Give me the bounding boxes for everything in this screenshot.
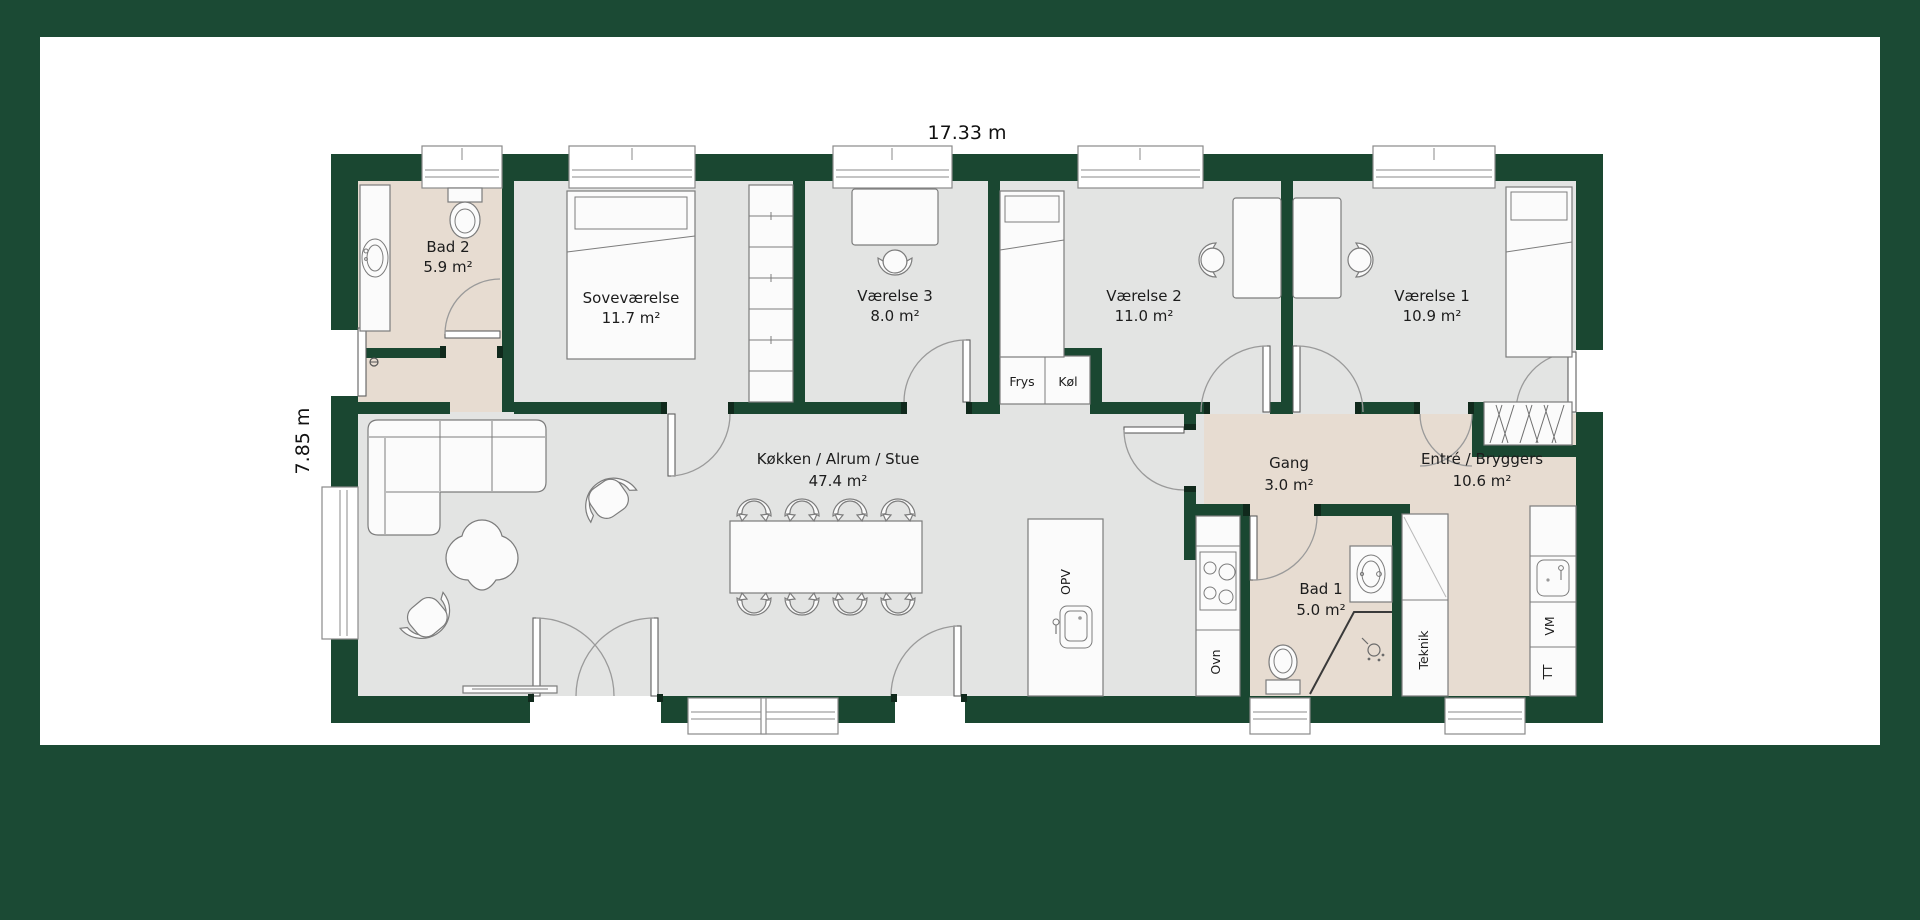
teknik-label: Teknik — [1416, 630, 1431, 671]
window-bad2 — [422, 146, 502, 188]
window-vaerelse1 — [1373, 146, 1495, 188]
desk-v2 — [1233, 198, 1281, 298]
window-stue-south — [688, 698, 838, 734]
window-entre-south — [1445, 698, 1525, 734]
fridge-freezer-niche: Frys Køl — [1000, 356, 1090, 404]
dining-table — [730, 521, 922, 593]
room-label-bad2: Bad 2 — [426, 238, 469, 256]
room-area-vaerelse1: 10.9 m² — [1403, 307, 1462, 325]
room-area-gang: 3.0 m² — [1264, 476, 1313, 494]
room-label-entre: Entré / Bryggers — [1421, 450, 1543, 468]
fridge-label: Køl — [1058, 374, 1077, 389]
room-area-bad1: 5.0 m² — [1296, 601, 1345, 619]
bad1-toilet — [1266, 645, 1300, 694]
bad1-vanity — [1350, 546, 1392, 602]
kitchen-island: OPV — [1028, 519, 1103, 696]
desk-v1 — [1293, 198, 1341, 298]
window-vaerelse2 — [1078, 146, 1203, 188]
room-label-vaerelse3: Værelse 3 — [857, 287, 933, 305]
oven-label: Ovn — [1208, 649, 1223, 674]
tv — [463, 686, 557, 693]
height-dimension: 7.85 m — [292, 408, 314, 475]
window-bad1-south — [1250, 698, 1310, 734]
room-area-sovevaerelse: 11.7 m² — [602, 309, 661, 327]
room-area-vaerelse2: 11.0 m² — [1115, 307, 1174, 325]
room-label-vaerelse1: Værelse 1 — [1394, 287, 1470, 305]
window-west — [322, 487, 358, 639]
washing-machine-label: VM — [1542, 616, 1557, 635]
room-area-vaerelse3: 8.0 m² — [870, 307, 919, 325]
dishwasher-label: OPV — [1058, 569, 1073, 595]
freezer-label: Frys — [1009, 374, 1034, 389]
vaerelse1-wardrobe — [1484, 402, 1572, 445]
bad2-sink-counter — [360, 185, 390, 331]
single-bed-v2 — [1000, 191, 1064, 357]
tumble-dryer-label: TT — [1540, 664, 1555, 680]
floor-plan: Frys Køl OPV Ovn — [0, 0, 1920, 920]
room-label-vaerelse2: Værelse 2 — [1106, 287, 1182, 305]
sovevaerelse-wardrobe — [749, 185, 793, 402]
teknik-closet: Teknik — [1402, 514, 1448, 696]
room-area-bad2: 5.9 m² — [423, 258, 472, 276]
width-dimension: 17.33 m — [928, 122, 1007, 144]
kitchen-counter: Ovn — [1196, 516, 1240, 696]
room-label-koekken: Køkken / Alrum / Stue — [757, 450, 920, 468]
room-area-koekken: 47.4 m² — [809, 472, 868, 490]
window-vaerelse3 — [833, 146, 952, 188]
double-bed — [567, 191, 695, 359]
room-label-sovevaerelse: Soveværelse — [583, 289, 680, 307]
single-bed-v1 — [1506, 187, 1572, 357]
desk-v3 — [852, 189, 938, 245]
laundry-column: VM TT — [1530, 506, 1576, 696]
room-area-entre: 10.6 m² — [1453, 472, 1512, 490]
bad2-toilet — [448, 188, 482, 238]
room-label-bad1: Bad 1 — [1299, 580, 1342, 598]
window-sovevaerelse — [569, 146, 695, 188]
room-label-gang: Gang — [1269, 454, 1309, 472]
